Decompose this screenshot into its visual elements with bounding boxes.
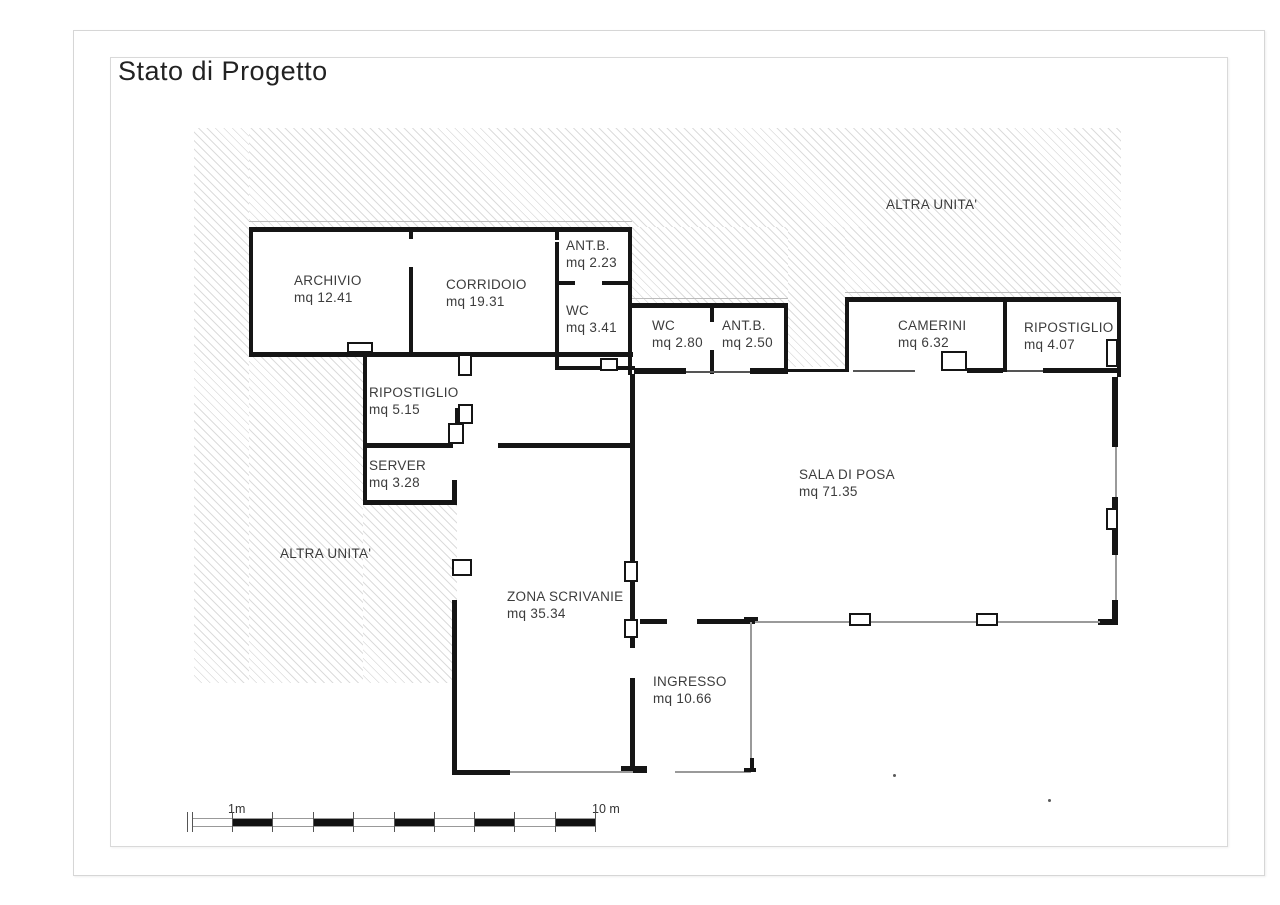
wall	[249, 227, 632, 232]
wall	[555, 285, 559, 370]
room-name: RIPOSTIGLIO	[369, 384, 459, 401]
wall	[555, 242, 559, 286]
other-unit-label-left: ALTRA UNITA'	[280, 545, 371, 562]
room-label-antb-1: ANT.B. mq 2.23	[566, 237, 617, 271]
wall	[630, 582, 635, 620]
hatch-area	[249, 128, 1121, 227]
room-area: mq 5.15	[369, 401, 459, 418]
scale-tick	[514, 812, 515, 832]
room-area: mq 2.80	[652, 334, 703, 351]
door-sill	[686, 371, 750, 373]
wall	[845, 297, 849, 372]
scale-tick	[394, 812, 395, 832]
wall-outline	[628, 298, 788, 299]
room-label-corridoio: CORRIDOIO mq 19.31	[446, 276, 527, 310]
room-name: SERVER	[369, 457, 426, 474]
scale-tick	[353, 812, 354, 832]
room-area: mq 10.66	[653, 690, 727, 707]
room-label-archivio: ARCHIVIO mq 12.41	[294, 272, 362, 306]
wall	[630, 374, 635, 562]
door-leaf	[448, 423, 464, 444]
wall	[1043, 368, 1117, 373]
room-name: CAMERINI	[898, 317, 966, 334]
room-name: WC	[566, 302, 617, 319]
wall	[452, 600, 457, 775]
room-area: mq 6.32	[898, 334, 966, 351]
wall	[630, 638, 635, 648]
room-name: WC	[652, 317, 703, 334]
other-unit-label-top: ALTRA UNITA'	[886, 196, 977, 213]
wall	[409, 232, 413, 239]
scale-tick	[313, 812, 314, 832]
wall	[555, 366, 635, 370]
room-label-wc-2: WC mq 2.80	[652, 317, 703, 351]
door-jamb	[347, 342, 373, 353]
window-pillar	[849, 613, 871, 626]
scale-segment	[313, 819, 353, 826]
window-glass	[1115, 447, 1117, 497]
door-sill	[853, 370, 915, 372]
wall	[710, 308, 714, 322]
door-leaf	[624, 561, 638, 582]
wall	[409, 267, 413, 357]
wall	[363, 500, 457, 505]
room-label-ripostiglio-left: RIPOSTIGLIO mq 5.15	[369, 384, 459, 418]
room-area: mq 19.31	[446, 293, 527, 310]
wall	[363, 352, 367, 505]
door-leaf	[624, 619, 638, 638]
room-area: mq 3.41	[566, 319, 617, 336]
room-label-zona-scrivanie: ZONA SCRIVANIE mq 35.34	[507, 588, 623, 622]
window-glass	[510, 771, 633, 773]
room-name: SALA DI POSA	[799, 466, 895, 483]
wall-outline	[249, 221, 632, 222]
scale-segment	[555, 819, 595, 826]
room-label-ingresso: INGRESSO mq 10.66	[653, 673, 727, 707]
room-label-sala-di-posa: SALA DI POSA mq 71.35	[799, 466, 895, 500]
room-name: ZONA SCRIVANIE	[507, 588, 623, 605]
door-leaf	[458, 404, 473, 424]
wall	[845, 297, 1121, 302]
wall-outline	[845, 292, 1121, 293]
room-name: CORRIDOIO	[446, 276, 527, 293]
door-leaf	[458, 354, 472, 376]
room-area: mq 3.28	[369, 474, 426, 491]
speck	[1048, 799, 1051, 802]
room-area: mq 35.34	[507, 605, 623, 622]
speck	[893, 774, 896, 777]
scale-tick	[474, 812, 475, 832]
wall	[249, 227, 253, 357]
room-label-wc-1: WC mq 3.41	[566, 302, 617, 336]
room-name: RIPOSTIGLIO	[1024, 319, 1114, 336]
wall	[967, 368, 1003, 373]
hatch-area	[194, 128, 249, 683]
floor-plan-page: Stato di Progetto	[0, 0, 1280, 905]
wall	[628, 227, 632, 375]
room-label-server: SERVER mq 3.28	[369, 457, 426, 491]
scale-segment	[394, 819, 434, 826]
wall	[555, 232, 559, 240]
room-label-ripostiglio-right: RIPOSTIGLIO mq 4.07	[1024, 319, 1114, 353]
room-name: INGRESSO	[653, 673, 727, 690]
hatch-area	[363, 505, 457, 683]
glass-wall	[750, 622, 752, 770]
door-leaf	[941, 351, 967, 371]
wall	[498, 443, 633, 448]
door-leaf	[600, 358, 618, 371]
scale-tick	[232, 812, 233, 832]
wall	[744, 617, 758, 621]
room-area: mq 12.41	[294, 289, 362, 306]
room-label-camerini: CAMERINI mq 6.32	[898, 317, 966, 351]
room-area: mq 2.23	[566, 254, 617, 271]
wall	[784, 303, 788, 374]
window-glass	[755, 621, 1100, 623]
wall	[634, 368, 686, 374]
glass-wall	[675, 771, 751, 773]
wall	[628, 303, 788, 308]
wall	[1098, 619, 1118, 625]
room-name: ANT.B.	[566, 237, 617, 254]
room-area: mq 71.35	[799, 483, 895, 500]
scale-segment	[474, 819, 514, 826]
scale-tick	[192, 812, 193, 832]
wall	[750, 368, 784, 374]
hatch-area	[845, 227, 1121, 297]
wall	[452, 480, 457, 505]
wall-niche	[452, 559, 472, 576]
wall	[744, 768, 756, 772]
room-label-antb-2: ANT.B. mq 2.50	[722, 317, 773, 351]
door-sill	[1007, 370, 1043, 372]
door-sill	[788, 369, 845, 372]
room-name: ARCHIVIO	[294, 272, 362, 289]
scale-tick	[555, 812, 556, 832]
page-title: Stato di Progetto	[118, 56, 328, 87]
window-pillar	[976, 613, 998, 626]
wall	[1003, 302, 1007, 372]
room-area: mq 4.07	[1024, 336, 1114, 353]
scale-tick	[434, 812, 435, 832]
wall	[1112, 377, 1118, 447]
scale-label-10m: 10 m	[592, 802, 620, 816]
wall	[249, 352, 633, 357]
wall	[452, 770, 510, 775]
wall	[640, 619, 667, 624]
wall	[363, 443, 453, 448]
hatch-area	[249, 357, 363, 683]
scale-label-1m: 1m	[228, 802, 245, 816]
window-glass	[1115, 555, 1117, 600]
scale-segment	[232, 819, 272, 826]
wall	[630, 678, 635, 770]
hatch-area	[788, 227, 845, 367]
scale-tick	[187, 812, 188, 832]
hatch-area	[632, 227, 788, 303]
scale-tick	[272, 812, 273, 832]
room-name: ANT.B.	[722, 317, 773, 334]
room-area: mq 2.50	[722, 334, 773, 351]
scale-tick	[595, 812, 596, 832]
window-pillar	[1106, 508, 1118, 530]
